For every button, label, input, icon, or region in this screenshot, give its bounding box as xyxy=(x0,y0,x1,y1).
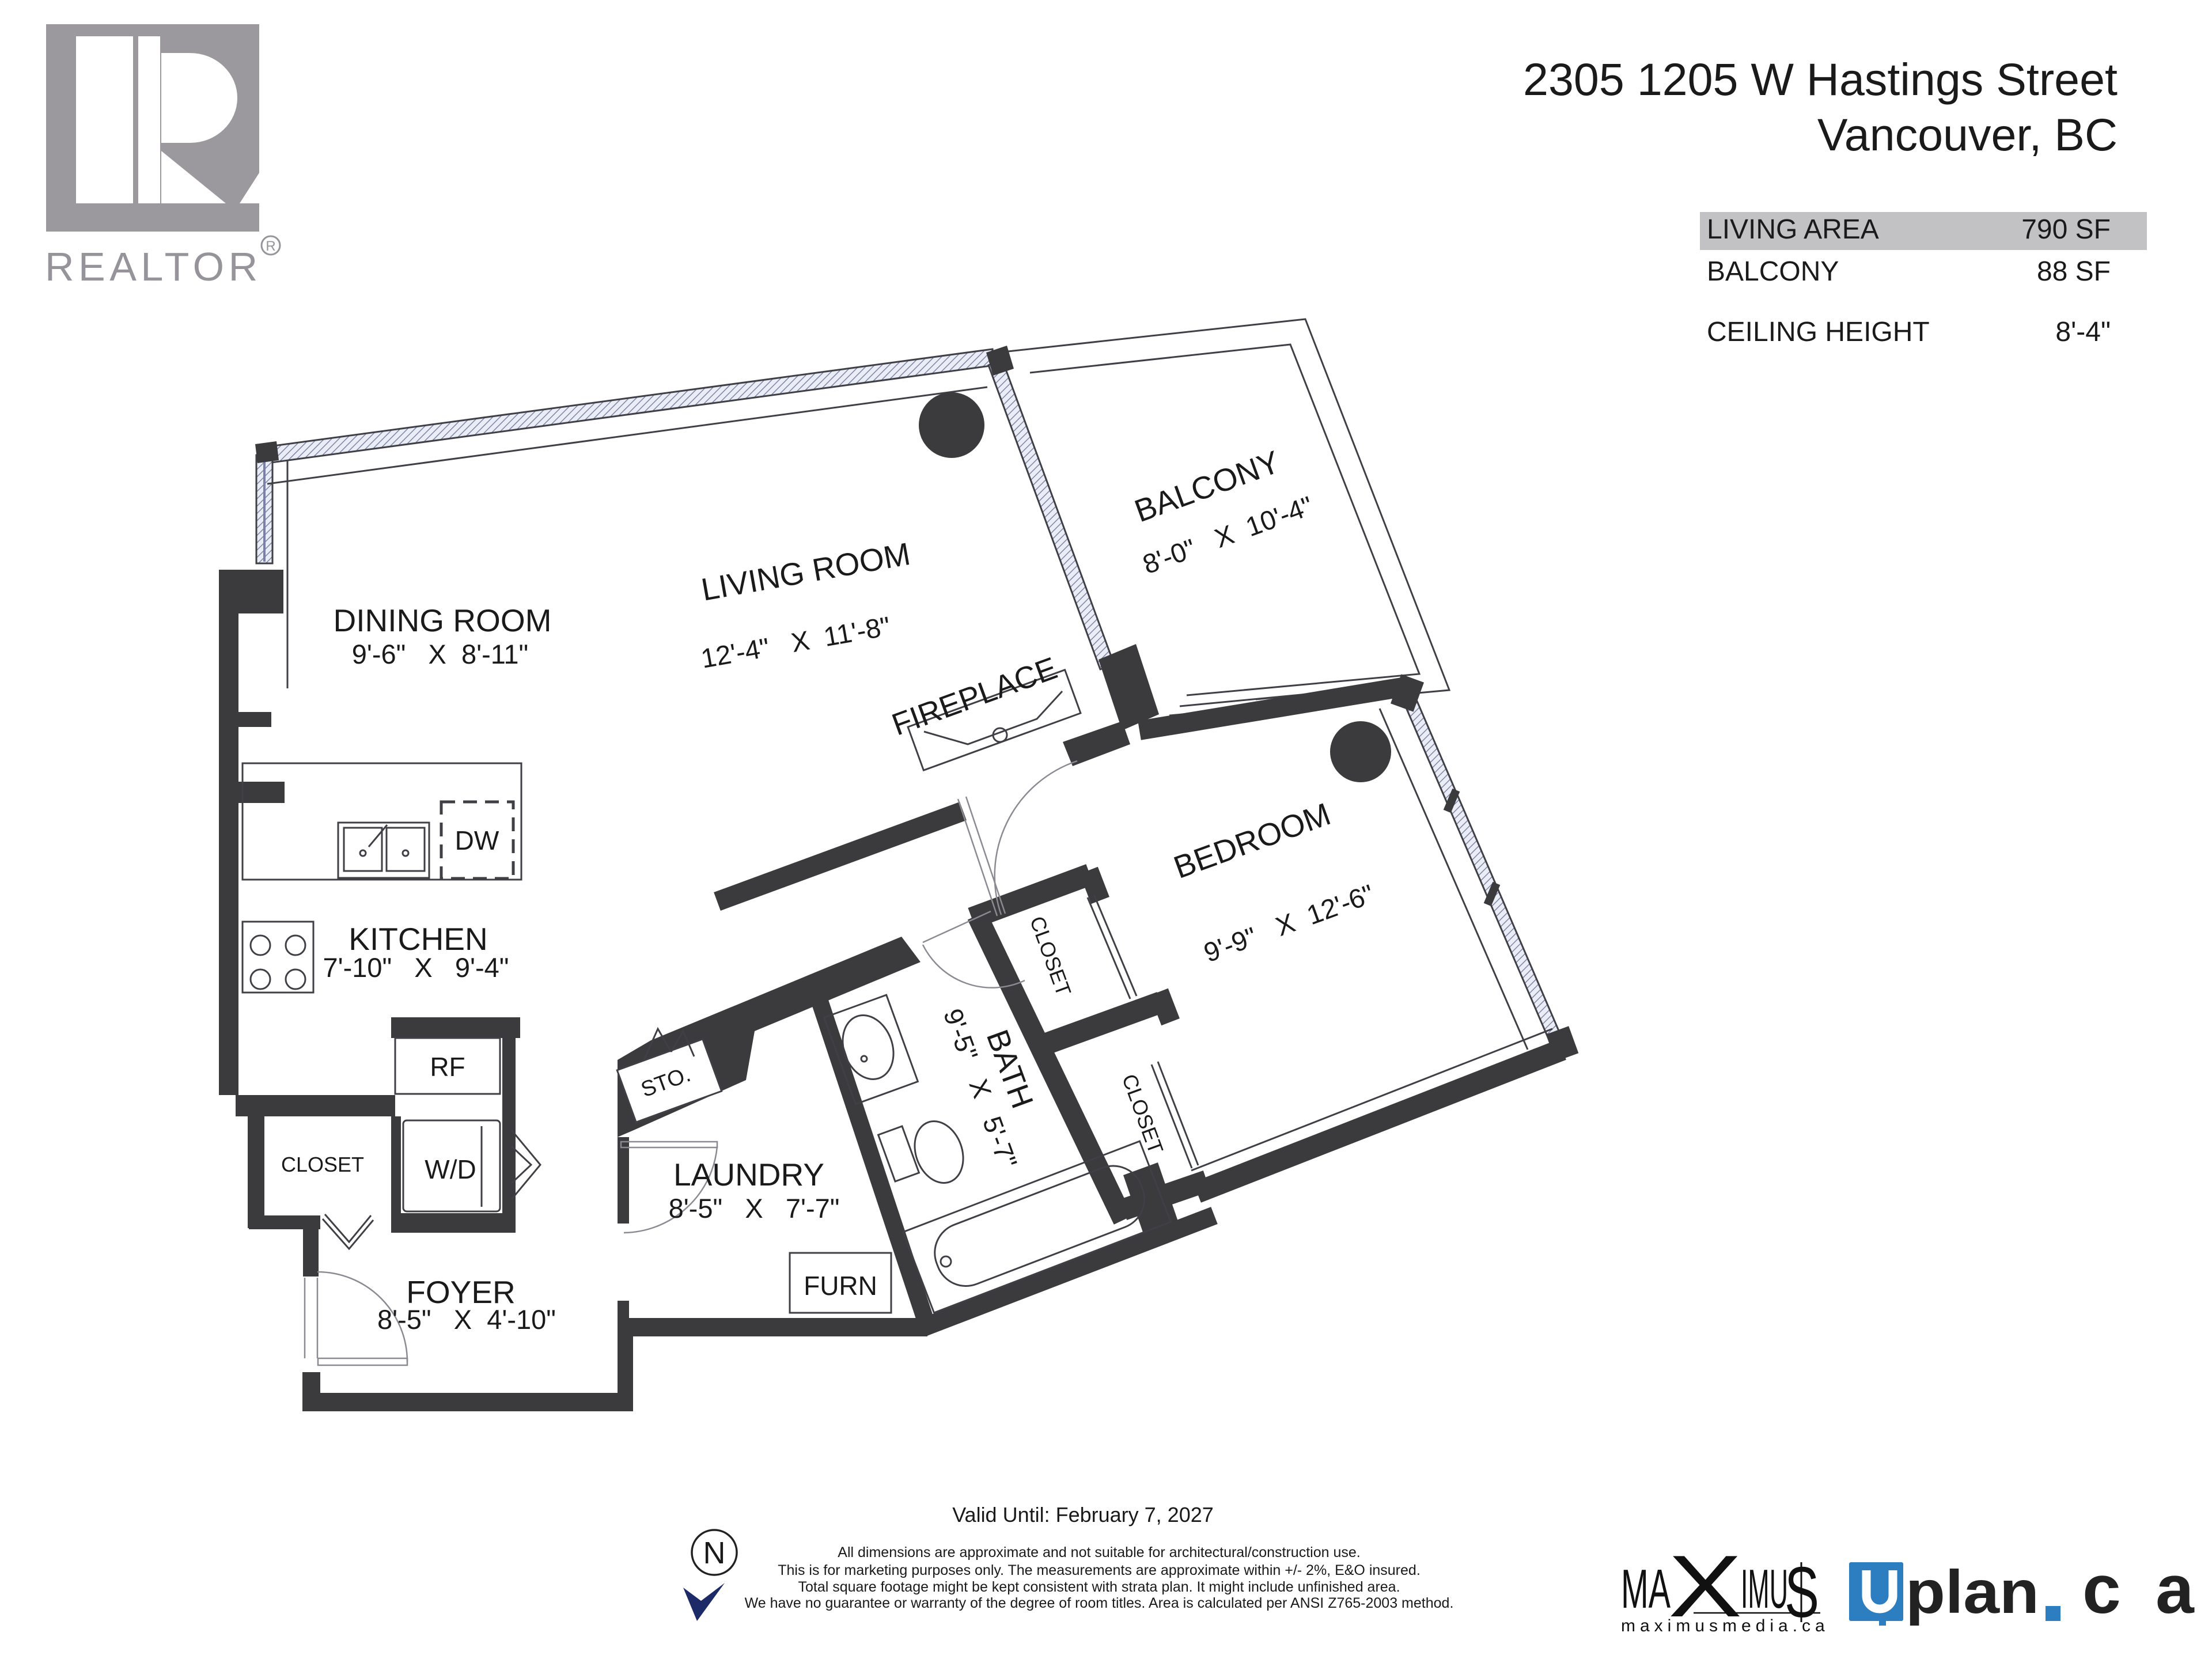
svg-text:RF: RF xyxy=(430,1052,465,1082)
svg-text:This is for marketing purposes: This is for marketing purposes only. The… xyxy=(778,1562,1421,1578)
svg-text:8'-5" X 4'-10": 8'-5" X 4'-10" xyxy=(377,1304,556,1335)
svg-text:BALCONY: BALCONY xyxy=(1707,256,1839,287)
svg-text:DW: DW xyxy=(455,825,499,855)
svg-text:8'-5" X 7'-7": 8'-5" X 7'-7" xyxy=(669,1193,840,1224)
svg-text:BEDROOM: BEDROOM xyxy=(1169,796,1335,885)
svg-text:plan: plan xyxy=(1906,1558,2039,1626)
svg-text:W/D: W/D xyxy=(425,1154,476,1184)
svg-text:FIREPLACE: FIREPLACE xyxy=(888,651,1062,743)
svg-text:12'-4" X 11'-8": 12'-4" X 11'-8" xyxy=(699,611,893,674)
svg-text:maximusmedia.ca: maximusmedia.ca xyxy=(1621,1616,1830,1635)
svg-text:We have no guarantee or warran: We have no guarantee or warranty of the … xyxy=(745,1595,1454,1611)
svg-text:All dimensions are approximate: All dimensions are approximate and not s… xyxy=(838,1544,1360,1560)
svg-text:LAUNDRY: LAUNDRY xyxy=(673,1157,824,1192)
svg-text:9'-9" X 12'-6": 9'-9" X 12'-6" xyxy=(1200,878,1378,968)
svg-text:LIVING AREA: LIVING AREA xyxy=(1707,214,1879,245)
svg-text:IMU: IMU xyxy=(1741,1558,1788,1620)
svg-text:88 SF: 88 SF xyxy=(2037,256,2111,287)
svg-text:DINING ROOM: DINING ROOM xyxy=(334,603,552,638)
svg-text:c: c xyxy=(2082,1551,2121,1628)
svg-text:7'-10" X 9'-4": 7'-10" X 9'-4" xyxy=(323,952,509,983)
svg-text:a: a xyxy=(2156,1551,2195,1628)
svg-text:Vancouver, BC: Vancouver, BC xyxy=(1817,109,2118,160)
svg-text:9'-6" X 8'-11": 9'-6" X 8'-11" xyxy=(352,639,528,669)
svg-text:2305 1205 W Hastings Street: 2305 1205 W Hastings Street xyxy=(1523,54,2118,105)
svg-text:790 SF: 790 SF xyxy=(2021,214,2111,245)
svg-text:8'-4": 8'-4" xyxy=(2055,317,2111,347)
svg-text:CLOSET: CLOSET xyxy=(1025,913,1076,999)
svg-text:FURN: FURN xyxy=(804,1271,877,1301)
svg-text:Valid Until: February 7, 2027: Valid Until: February 7, 2027 xyxy=(952,1503,1214,1527)
svg-text:Total square footage might be: Total square footage might be kept consi… xyxy=(798,1579,1400,1595)
svg-text:CLOSET: CLOSET xyxy=(1118,1071,1168,1157)
svg-text:LIVING ROOM: LIVING ROOM xyxy=(699,536,913,608)
svg-text:KITCHEN: KITCHEN xyxy=(349,921,487,957)
svg-text:CLOSET: CLOSET xyxy=(281,1153,364,1176)
svg-text:MA: MA xyxy=(1621,1558,1671,1620)
svg-text:CEILING HEIGHT: CEILING HEIGHT xyxy=(1707,317,1930,347)
svg-text:REALTOR: REALTOR xyxy=(45,244,262,289)
svg-text:N: N xyxy=(703,1536,726,1570)
svg-text:R: R xyxy=(266,238,275,254)
